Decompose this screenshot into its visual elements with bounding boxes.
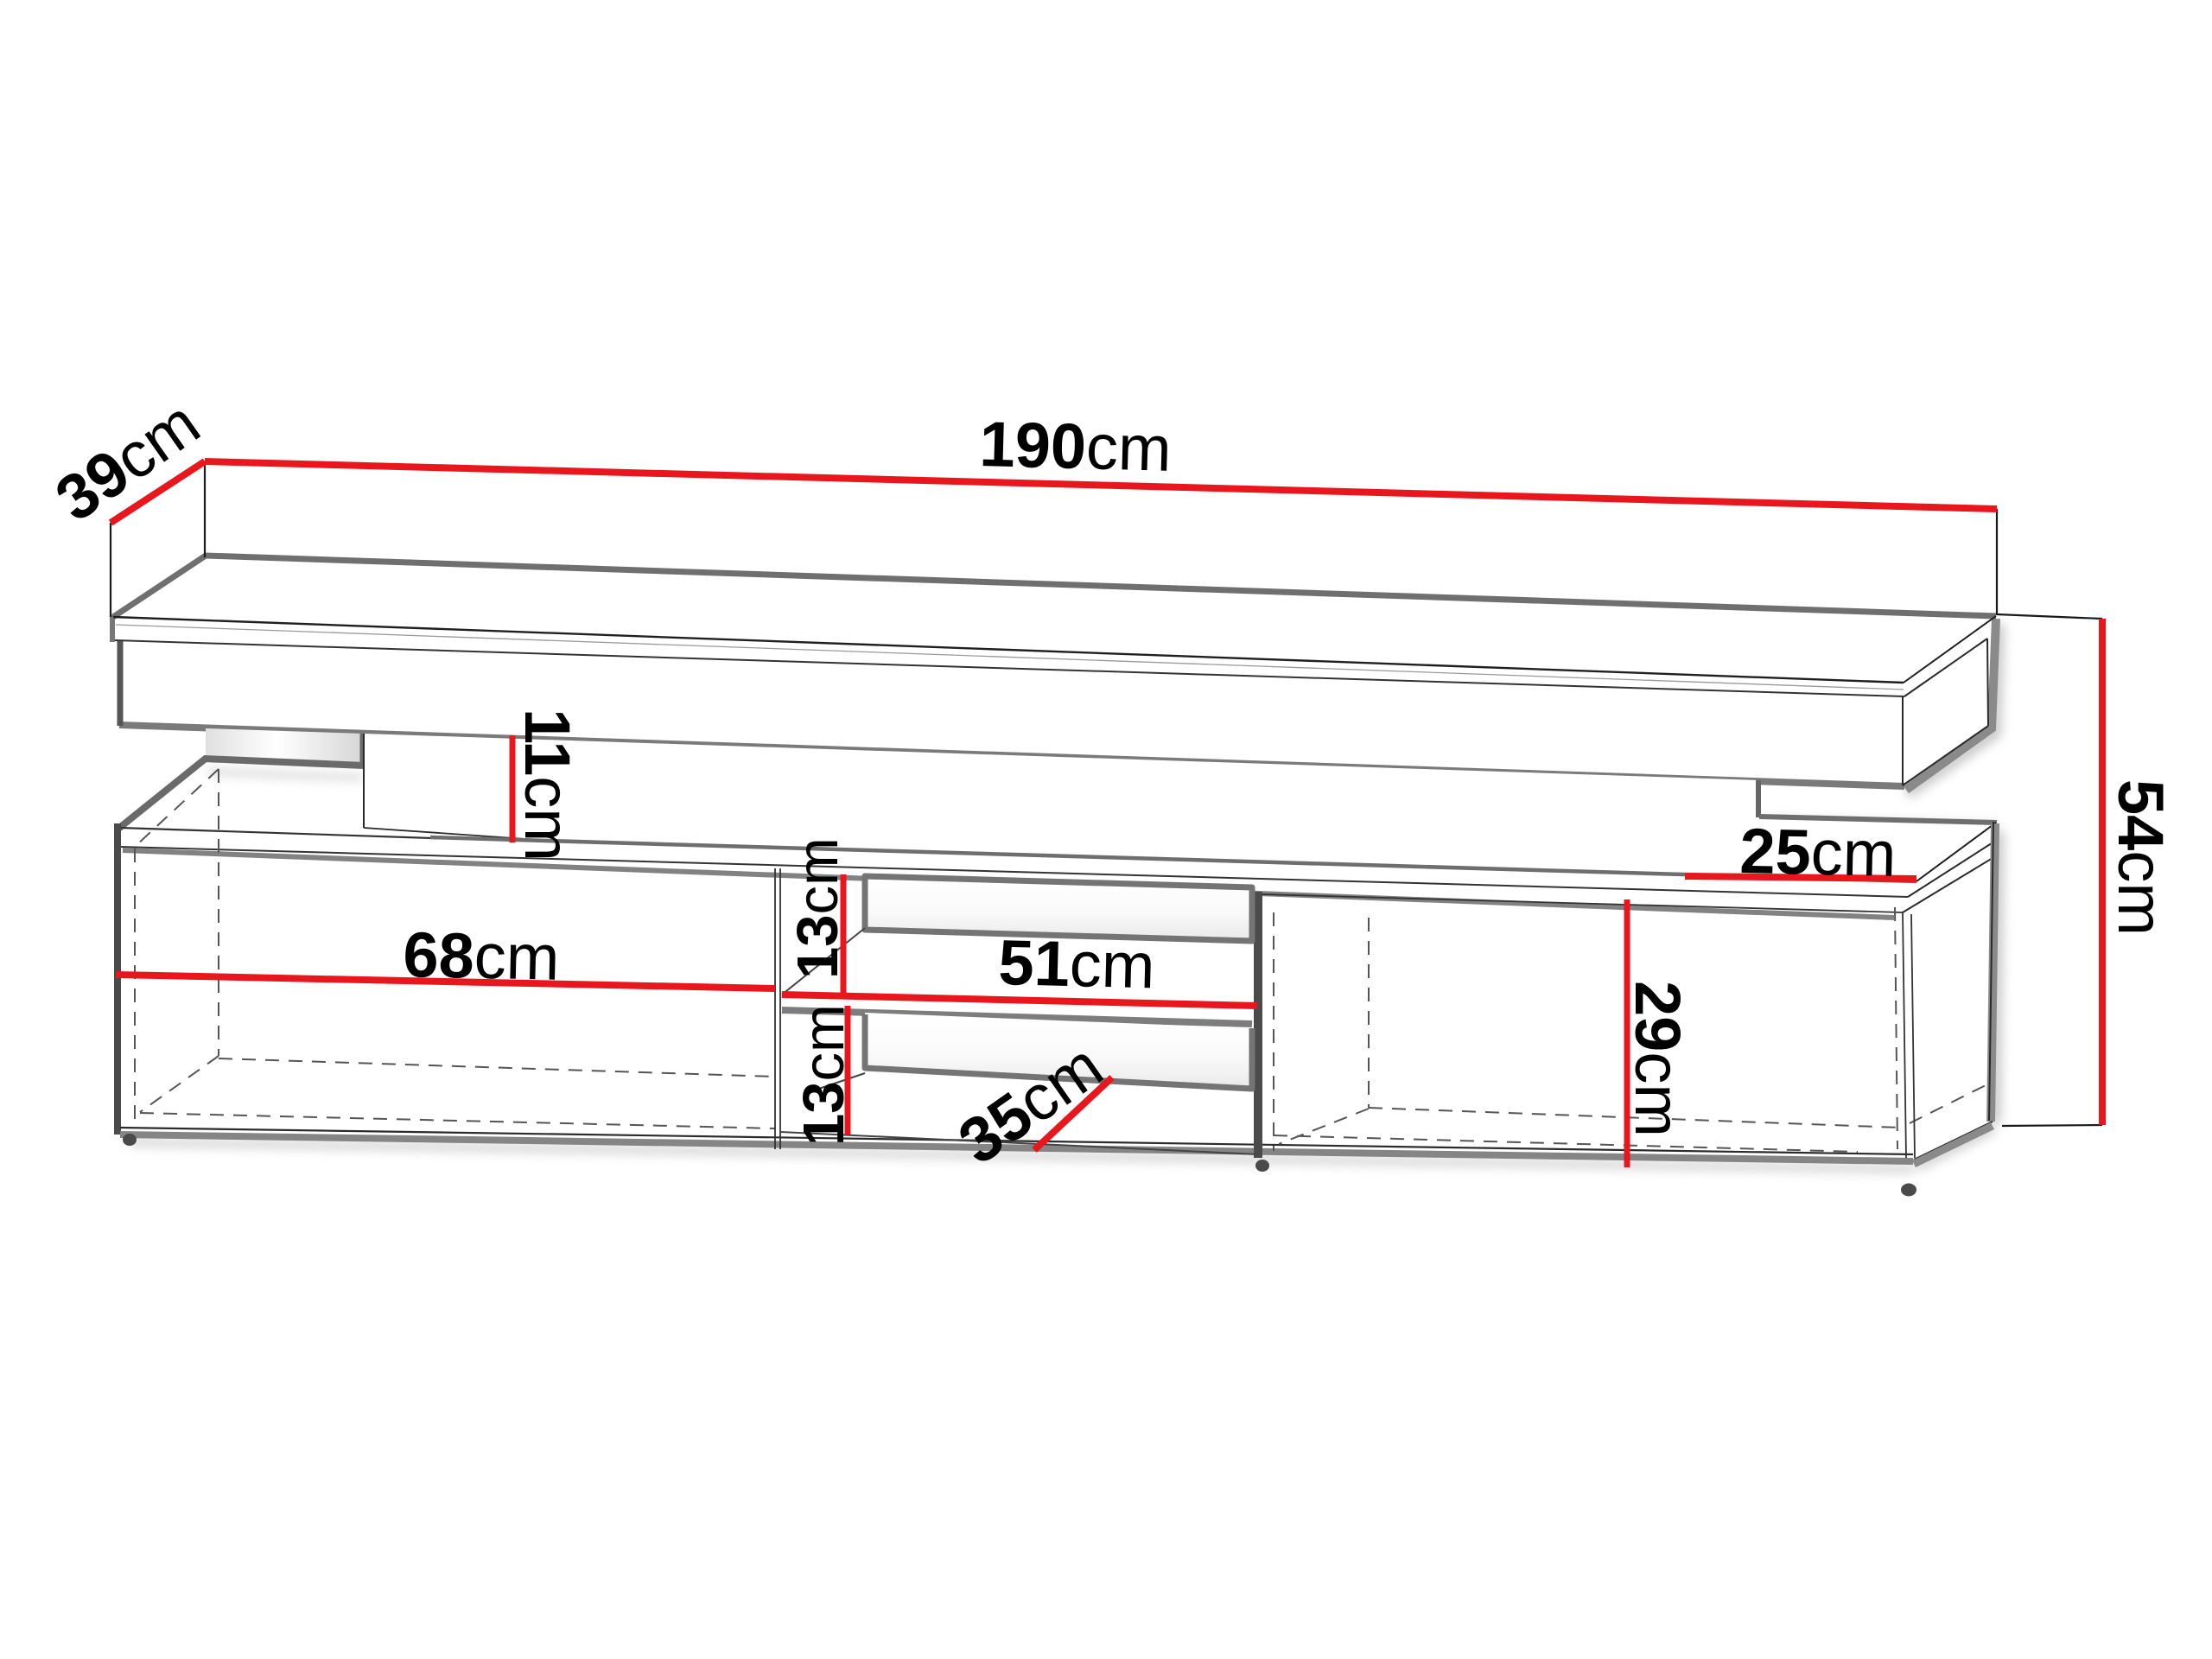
svg-text:29cm: 29cm [1622,981,1694,1137]
svg-text:13cm: 13cm [791,1004,856,1146]
svg-text:51cm: 51cm [998,926,1156,1001]
svg-text:11cm: 11cm [512,709,583,861]
svg-text:13cm: 13cm [785,837,850,979]
svg-text:68cm: 68cm [403,918,561,994]
svg-text:190cm: 190cm [979,408,1173,485]
svg-text:54cm: 54cm [2105,779,2177,936]
svg-text:25cm: 25cm [1739,815,1897,890]
